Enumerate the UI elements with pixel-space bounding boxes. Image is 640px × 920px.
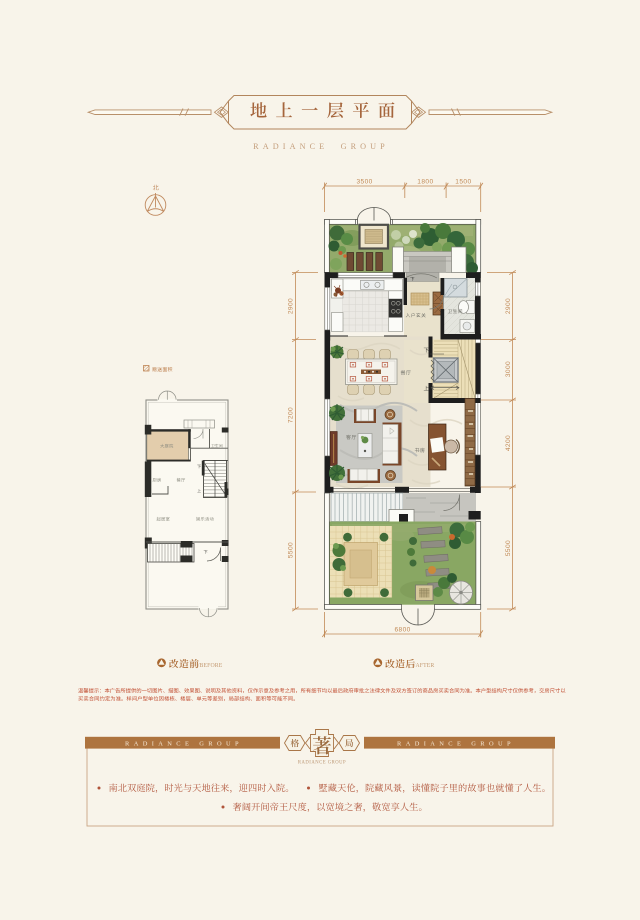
- svg-text:RADIANCE GROUP: RADIANCE GROUP: [253, 142, 389, 151]
- svg-text:7200: 7200: [288, 407, 295, 423]
- svg-text:1500: 1500: [455, 178, 471, 185]
- svg-text:3500: 3500: [356, 178, 372, 185]
- svg-text:RADIANCE GROUP: RADIANCE GROUP: [125, 741, 243, 748]
- svg-text:1800: 1800: [417, 178, 433, 185]
- svg-text:3000: 3000: [505, 361, 512, 377]
- svg-text:5500: 5500: [505, 540, 512, 556]
- svg-text:4200: 4200: [505, 435, 512, 451]
- svg-text:RADIANCE GROUP: RADIANCE GROUP: [397, 741, 515, 748]
- svg-text:2900: 2900: [505, 298, 512, 314]
- svg-text:2900: 2900: [288, 298, 295, 314]
- svg-text:/AFTER: /AFTER: [414, 663, 435, 669]
- svg-text:5500: 5500: [288, 542, 295, 558]
- svg-text:/BEFORE: /BEFORE: [198, 663, 223, 669]
- svg-text:RADIANCE GROUP: RADIANCE GROUP: [298, 761, 346, 766]
- svg-text:6800: 6800: [394, 626, 410, 633]
